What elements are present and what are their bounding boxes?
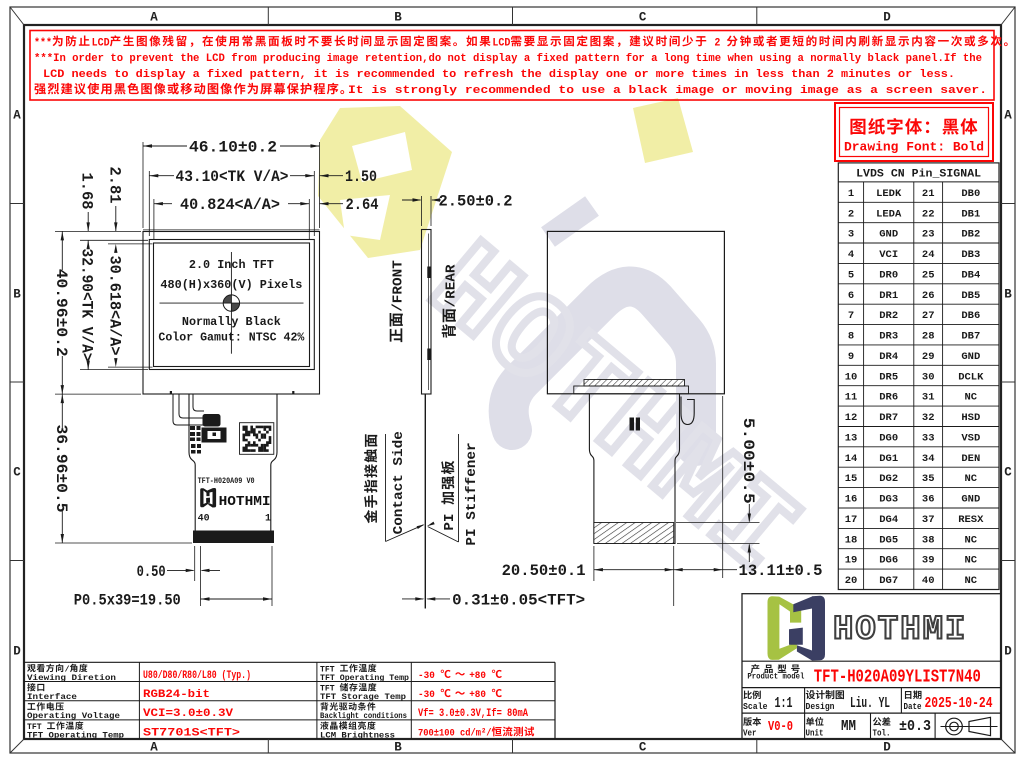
svg-text:B: B — [1004, 287, 1012, 301]
svg-text:PI Stiffener: PI Stiffener — [464, 442, 480, 545]
svg-text:2.0 Inch TFT: 2.0 Inch TFT — [189, 259, 274, 272]
svg-text:TFT Operating Temp: TFT Operating Temp — [320, 673, 409, 683]
svg-text:D: D — [883, 11, 891, 25]
svg-text:32.90<TK V/A>: 32.90<TK V/A> — [78, 249, 96, 362]
svg-text:DR6: DR6 — [879, 392, 898, 404]
svg-text:2.64: 2.64 — [346, 196, 379, 214]
svg-text:TFT-H020A09YLIST7N40: TFT-H020A09YLIST7N40 — [814, 668, 981, 688]
svg-text:20: 20 — [845, 575, 858, 587]
svg-text:DR3: DR3 — [879, 331, 898, 343]
svg-text:DCLK: DCLK — [958, 371, 984, 383]
svg-text:2025-10-24: 2025-10-24 — [925, 695, 993, 712]
svg-text:40: 40 — [922, 575, 935, 587]
svg-text:DB0: DB0 — [961, 188, 980, 200]
svg-text:DG4: DG4 — [879, 514, 898, 526]
svg-text:43.10<TK V/A>: 43.10<TK V/A> — [176, 168, 289, 186]
svg-text:32: 32 — [922, 412, 935, 424]
svg-text:35: 35 — [922, 473, 935, 485]
svg-text:DR0: DR0 — [879, 269, 898, 281]
svg-text:D: D — [13, 644, 21, 658]
svg-text:40.824<A/A>: 40.824<A/A> — [180, 196, 280, 214]
svg-text:A: A — [13, 109, 21, 123]
svg-text:25: 25 — [922, 269, 935, 281]
svg-text:HSD: HSD — [961, 412, 980, 424]
svg-text:31: 31 — [922, 392, 935, 404]
svg-text:TFT Operating Temp: TFT Operating Temp — [27, 730, 124, 740]
svg-text:Normally Black: Normally Black — [182, 316, 281, 329]
svg-text:Scale: Scale — [743, 702, 768, 712]
svg-text:Design: Design — [806, 702, 835, 712]
svg-text:LCD: LCD — [92, 37, 110, 49]
svg-text:LCD: LCD — [492, 37, 510, 49]
svg-text:DG0: DG0 — [879, 433, 898, 445]
svg-text:DB3: DB3 — [961, 249, 980, 261]
svg-text:46.10±0.2: 46.10±0.2 — [189, 139, 277, 157]
svg-text:RGB24-bit: RGB24-bit — [143, 689, 210, 701]
svg-text:DG5: DG5 — [879, 534, 898, 546]
svg-text:TFT Storage Temp: TFT Storage Temp — [320, 693, 406, 702]
svg-text:Unit: Unit — [806, 729, 824, 739]
svg-text:4: 4 — [848, 249, 854, 261]
svg-text:2: 2 — [708, 37, 726, 49]
svg-text:700±100 cd/m²/: 700±100 cd/m²/ — [418, 727, 492, 739]
svg-text:480(H)x360(V) Pixels: 480(H)x360(V) Pixels — [160, 279, 302, 292]
svg-text:2.81: 2.81 — [105, 167, 123, 204]
svg-text:RESX: RESX — [958, 514, 984, 526]
svg-text:ST7701S<TFT>: ST7701S<TFT> — [143, 727, 240, 739]
svg-text:VSD: VSD — [961, 433, 980, 445]
svg-text:39: 39 — [922, 555, 935, 567]
svg-text:13: 13 — [845, 433, 858, 445]
svg-text:/FRONT: /FRONT — [391, 260, 407, 312]
svg-text:Contact Side: Contact Side — [391, 431, 407, 534]
svg-text:1.50: 1.50 — [345, 168, 377, 186]
svg-text:C: C — [639, 11, 647, 25]
svg-text:***: *** — [34, 37, 52, 49]
svg-text:DG3: DG3 — [879, 494, 898, 506]
svg-text:DG6: DG6 — [879, 555, 898, 567]
svg-text:21: 21 — [922, 188, 935, 200]
svg-text:37: 37 — [922, 514, 935, 526]
svg-text:34: 34 — [922, 453, 935, 465]
svg-text:DB5: DB5 — [961, 290, 980, 302]
svg-text:B: B — [394, 11, 402, 25]
svg-text:40.96±0.2: 40.96±0.2 — [52, 269, 70, 357]
svg-text:HOTHMI: HOTHMI — [219, 494, 271, 510]
svg-text:LCM Brightness: LCM Brightness — [320, 730, 395, 740]
svg-text:Interface: Interface — [27, 692, 77, 702]
svg-text:9: 9 — [848, 351, 854, 363]
svg-text:TFT-H020A09 V0: TFT-H020A09 V0 — [198, 477, 255, 486]
svg-text:6: 6 — [848, 290, 854, 302]
svg-text:0.50: 0.50 — [137, 563, 166, 581]
svg-text:C: C — [1004, 466, 1012, 480]
svg-text:Drawing Font: Bold: Drawing Font: Bold — [844, 141, 984, 155]
svg-text:27: 27 — [922, 310, 935, 322]
svg-text:3: 3 — [848, 229, 854, 241]
svg-text:LEDK: LEDK — [876, 188, 902, 200]
svg-text:11: 11 — [845, 392, 858, 404]
svg-text:5.00±0.5: 5.00±0.5 — [739, 418, 757, 504]
svg-text:+80: +80 — [464, 671, 492, 682]
svg-text:1.68: 1.68 — [78, 173, 96, 210]
svg-text:GND: GND — [961, 494, 980, 506]
svg-text:±0.3: ±0.3 — [899, 718, 931, 735]
svg-text:Viewing Diretion: Viewing Diretion — [27, 673, 116, 683]
svg-text:23: 23 — [922, 229, 935, 241]
svg-text:LVDS CN Pin_SIGNAL: LVDS CN Pin_SIGNAL — [856, 168, 981, 180]
svg-text:LEDA: LEDA — [876, 208, 902, 220]
svg-text:DB2: DB2 — [961, 229, 980, 241]
svg-text:26: 26 — [922, 290, 935, 302]
svg-text:DB1: DB1 — [961, 208, 980, 220]
svg-text:VCI: VCI — [879, 249, 898, 261]
svg-text:DR1: DR1 — [879, 290, 898, 302]
svg-text:1: 1 — [265, 514, 271, 525]
svg-text:GND: GND — [961, 351, 980, 363]
svg-text:***In order to prevent the LCD: ***In order to prevent the LCD from prod… — [34, 53, 982, 65]
svg-text:D: D — [883, 741, 891, 755]
svg-text:30.618<A/A>: 30.618<A/A> — [105, 256, 123, 356]
svg-text:20.50±0.1: 20.50±0.1 — [502, 562, 586, 580]
svg-text:NC: NC — [964, 555, 977, 567]
svg-text:17: 17 — [845, 514, 858, 526]
svg-text:12: 12 — [845, 412, 858, 424]
svg-text:V0-0: V0-0 — [768, 720, 793, 735]
svg-text:U80/D80/R80/L80 (Typ.): U80/D80/R80/L80 (Typ.) — [143, 670, 251, 682]
svg-text:B: B — [394, 741, 402, 755]
svg-text:LCD needs to display a fixed p: LCD needs to display a fixed pattern, it… — [43, 69, 955, 81]
svg-text:DG1: DG1 — [879, 453, 898, 465]
svg-text:It is strongly recommended to: It is strongly recommended to use a blac… — [348, 85, 987, 97]
svg-text:DR5: DR5 — [879, 371, 898, 383]
svg-text:NC: NC — [964, 534, 977, 546]
svg-text:30: 30 — [922, 371, 935, 383]
svg-text:A: A — [1004, 109, 1012, 123]
svg-text:10: 10 — [845, 371, 858, 383]
svg-text:Product model: Product model — [747, 672, 804, 682]
svg-text:-30: -30 — [418, 690, 440, 701]
svg-text:2: 2 — [848, 208, 854, 220]
svg-text:P0.5x39=19.50: P0.5x39=19.50 — [74, 592, 181, 610]
svg-text:VCI=3.0±0.3V: VCI=3.0±0.3V — [143, 708, 233, 720]
svg-text:NC: NC — [964, 473, 977, 485]
svg-text:Liu. YL: Liu. YL — [850, 695, 890, 712]
svg-text:NC: NC — [964, 392, 977, 404]
svg-text:C: C — [13, 466, 21, 480]
svg-text:2.50±0.2: 2.50±0.2 — [439, 193, 513, 211]
svg-text:DR4: DR4 — [879, 351, 898, 363]
svg-text:Color Gamut: NTSC 42%: Color Gamut: NTSC 42% — [158, 332, 304, 345]
svg-text:15: 15 — [845, 473, 858, 485]
svg-text:NC: NC — [964, 575, 977, 587]
svg-text:14: 14 — [845, 453, 858, 465]
svg-text:A: A — [150, 11, 158, 25]
svg-text:GND: GND — [879, 229, 898, 241]
svg-text:16: 16 — [845, 494, 858, 506]
svg-text:B: B — [13, 287, 21, 301]
svg-text:Ver: Ver — [743, 729, 757, 739]
svg-text:5: 5 — [848, 269, 854, 281]
svg-text:A: A — [150, 741, 158, 755]
svg-text:0.31±0.05<TFT>: 0.31±0.05<TFT> — [452, 591, 585, 609]
svg-text:Tol.: Tol. — [873, 729, 891, 739]
svg-text:HOTHMI: HOTHMI — [833, 612, 967, 650]
svg-text:18: 18 — [845, 534, 858, 546]
svg-text:13.11±0.5: 13.11±0.5 — [739, 562, 823, 580]
svg-text:DR7: DR7 — [879, 412, 898, 424]
svg-text:DG2: DG2 — [879, 473, 898, 485]
svg-text:36.96±0.5: 36.96±0.5 — [52, 425, 70, 513]
svg-text:22: 22 — [922, 208, 935, 220]
svg-text:19: 19 — [845, 555, 858, 567]
svg-text:DB6: DB6 — [961, 310, 980, 322]
svg-text:/REAR: /REAR — [444, 264, 460, 308]
svg-text:PI: PI — [442, 505, 458, 531]
svg-text:DG7: DG7 — [879, 575, 898, 587]
svg-text:33: 33 — [922, 433, 935, 445]
svg-text:7: 7 — [848, 310, 854, 322]
svg-text:DR2: DR2 — [879, 310, 898, 322]
svg-text:36: 36 — [922, 494, 935, 506]
svg-text:-30: -30 — [418, 671, 440, 682]
svg-text:MM: MM — [841, 718, 856, 735]
svg-text:38: 38 — [922, 534, 935, 546]
svg-text:29: 29 — [922, 351, 935, 363]
svg-text:DB4: DB4 — [961, 269, 980, 281]
svg-text:DEN: DEN — [961, 453, 980, 465]
svg-text:Date: Date — [904, 702, 922, 712]
svg-text:8: 8 — [848, 331, 854, 343]
svg-text:40: 40 — [198, 514, 210, 525]
svg-text:D: D — [1004, 644, 1012, 658]
svg-text:Vf= 3.0±0.3V,If= 80mA: Vf= 3.0±0.3V,If= 80mA — [418, 708, 528, 720]
svg-text:28: 28 — [922, 331, 935, 343]
svg-text:C: C — [639, 741, 647, 755]
svg-text:/: / — [65, 664, 70, 674]
svg-text:+80: +80 — [464, 690, 492, 701]
svg-text:24: 24 — [922, 249, 935, 261]
svg-text:Operating Voltage: Operating Voltage — [27, 711, 120, 721]
svg-text:Backlight conditions: Backlight conditions — [320, 711, 407, 721]
svg-text:1: 1 — [848, 188, 854, 200]
svg-text:DB7: DB7 — [961, 331, 980, 343]
svg-text:1:1: 1:1 — [775, 696, 793, 712]
